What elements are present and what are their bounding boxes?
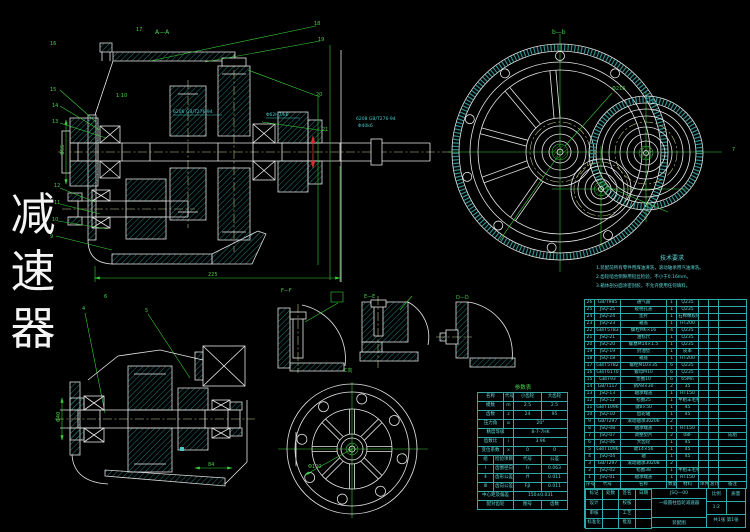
balloon: 5	[145, 308, 148, 314]
detail-view-f: F—F	[278, 288, 345, 373]
balloon: 21	[322, 127, 328, 133]
balloon: 7	[732, 147, 735, 153]
view-label-bb: b—b	[552, 29, 566, 36]
cad-canvas: 6206 GB/T276-94 Φ62H7/k6 6208 GB/T276-94…	[0, 0, 750, 532]
detail-label-ee: E—E	[364, 294, 375, 300]
balloon: 18	[314, 21, 320, 27]
mass-label: 质量	[727, 489, 746, 501]
balloon: 4	[82, 306, 85, 312]
section-label-aa: A—A	[155, 29, 170, 36]
tech-requirements: 技术要求 1.装配前所有零件用煤油清洗，滚动轴承用汽油清洗。2.齿轮啮合侧隙用铅…	[596, 253, 748, 291]
annotation-bearing-left: 6206 GB/T276-94	[173, 109, 213, 115]
scale-value: 1:2	[707, 502, 727, 514]
balloon: 20	[316, 92, 322, 98]
side-title: 减速器	[6, 186, 60, 357]
balloon: 19	[318, 37, 324, 43]
bom-table: 26GB/T985通气器1Q23525JSQ-25窥视孔盖1Q23524JSQ-…	[584, 299, 746, 489]
annotation-bearing-right: 6208 GB/T276-94	[356, 116, 396, 122]
scale-label: 比例	[707, 489, 727, 501]
annotation-fit: Φ62H7/k6	[266, 112, 289, 118]
drawing-number: JSQ—00	[652, 489, 706, 499]
detail-label-ff: F—F	[281, 288, 292, 294]
housing-note: 1:10	[116, 93, 127, 99]
balloon: 13	[52, 119, 58, 125]
param-table-body: 名称代号小齿轮大齿轮模数m2.52.5齿数z2495压力角α20°精度等级8-7…	[478, 393, 568, 510]
title-block: 标记处数签名日期设计校核审核工艺标准化批准 JSQ—00 一级圆柱齿轮减速器 装…	[584, 488, 746, 528]
flange-view: C向	[278, 367, 428, 518]
dim-label: 225	[208, 272, 218, 278]
detail-view-d: D—D	[436, 295, 515, 367]
title-block-signatures: 标记处数签名日期设计校核审核工艺标准化批准	[586, 490, 652, 529]
view-label-c: C向	[344, 367, 353, 374]
annotation-fit-right: Φ40k6	[358, 123, 373, 129]
detail-view-e: E—E	[360, 294, 429, 368]
tech-req-lines: 1.装配前所有零件用煤油清洗，滚动轴承用汽油清洗。2.齿轮啮合侧隙用铅丝检验，不…	[596, 264, 748, 291]
end-view: b—b	[448, 29, 735, 272]
drawing-title: 一级圆柱齿轮减速器	[652, 499, 706, 518]
dim-label: Φ100	[308, 464, 321, 470]
balloon: 15	[50, 87, 56, 93]
balloon: 16	[50, 41, 56, 47]
balloon: 6	[104, 294, 107, 300]
mass-value	[727, 502, 746, 514]
dim-label: Φ216	[612, 86, 625, 92]
balloon: 17	[136, 27, 142, 33]
sheet-info: 共1张 第1张	[707, 515, 745, 527]
drawing-subtitle: 装配图	[652, 518, 706, 527]
dim-label: 84	[208, 462, 214, 468]
param-table: 参数表 名称代号小齿轮大齿轮模数m2.52.5齿数z2495压力角α20°精度等…	[477, 383, 569, 510]
bom-table-body: 26GB/T985通气器1Q23525JSQ-25窥视孔盖1Q23524JSQ-…	[585, 300, 747, 489]
dim-label: Φ55	[60, 145, 66, 155]
dim-label: Φ40	[56, 412, 62, 422]
lower-shaft-view: Φ40 84 4 5 6	[55, 294, 255, 486]
param-table-title: 参数表	[477, 383, 569, 391]
detail-label-dd: D—D	[456, 295, 469, 301]
balloon: 14	[52, 103, 58, 109]
tech-req-heading: 技术要求	[596, 253, 748, 262]
